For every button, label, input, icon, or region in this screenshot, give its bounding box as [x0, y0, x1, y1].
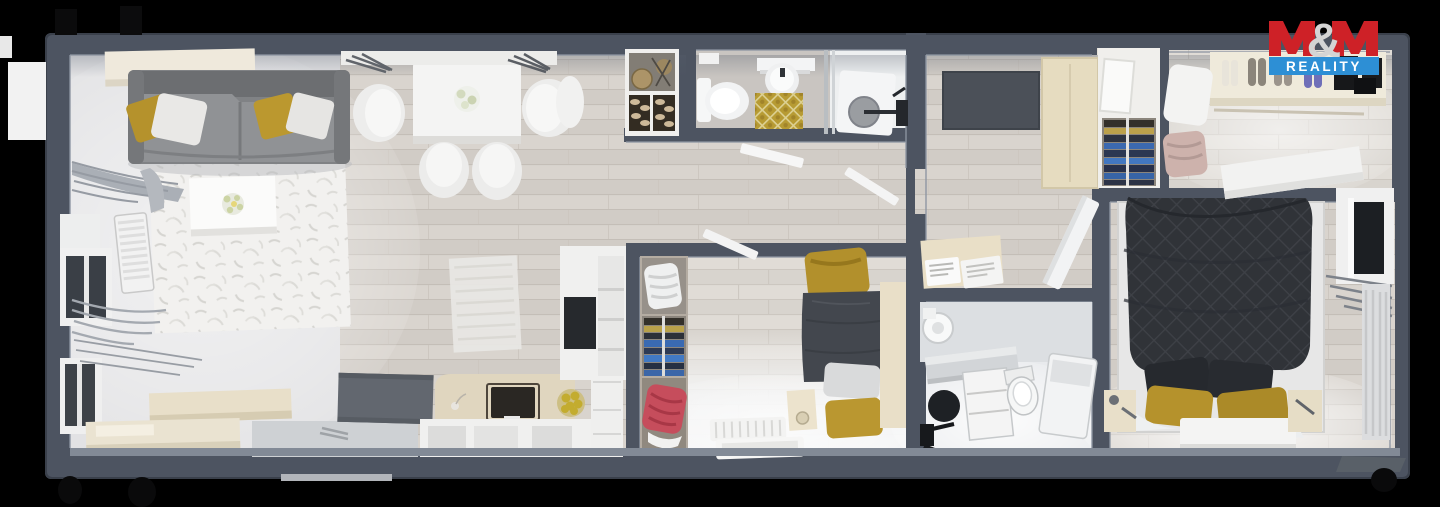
svg-text:REALITY: REALITY	[1286, 59, 1362, 74]
